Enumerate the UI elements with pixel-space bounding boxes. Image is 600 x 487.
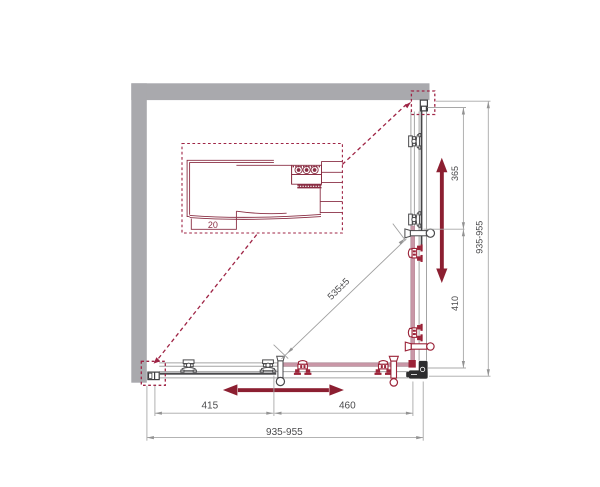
svg-text:460: 460 <box>339 401 356 412</box>
svg-text:20: 20 <box>208 220 218 230</box>
svg-text:415: 415 <box>201 401 218 412</box>
svg-text:365: 365 <box>450 166 460 181</box>
svg-text:535±5: 535±5 <box>326 276 353 302</box>
svg-text:410: 410 <box>450 296 460 311</box>
svg-text:935-955: 935-955 <box>474 221 484 254</box>
svg-text:935-955: 935-955 <box>266 427 303 438</box>
